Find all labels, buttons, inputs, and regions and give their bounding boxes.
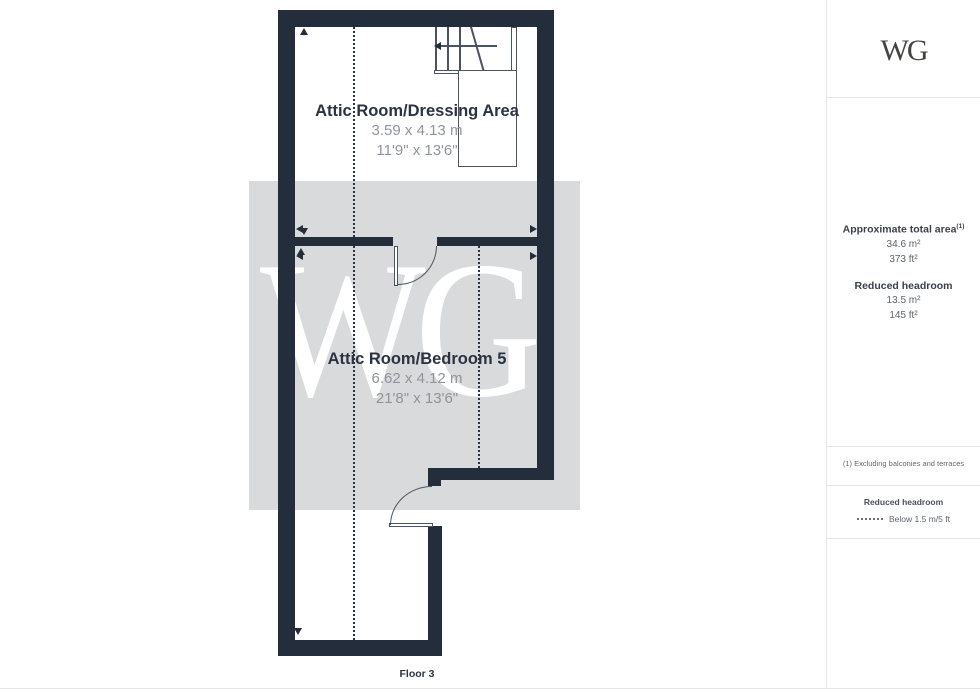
area-summary: Approximate total area(1) 34.6 m² 373 ft… <box>827 220 980 323</box>
reduced-headroom-line <box>353 246 355 640</box>
dimension-arrow-left-icon <box>296 225 303 233</box>
room-name: Attic Room/Dressing Area <box>267 101 567 121</box>
stair-tread <box>459 27 461 71</box>
approximate-total-area-text: Approximate total area <box>843 224 957 236</box>
legend-label: Below 1.5 m/5 ft <box>889 514 950 524</box>
page-bottom-divider <box>0 688 980 689</box>
sidebar-section-divider <box>827 485 980 486</box>
wall-bottom <box>278 640 442 656</box>
total-area-m2: 34.6 m² <box>827 237 980 252</box>
total-area-ft2: 373 ft² <box>827 252 980 267</box>
stair-direction-arrow-icon <box>434 42 441 50</box>
reduced-headroom-title: Reduced headroom <box>827 279 980 293</box>
dimension-arrow-left-icon <box>296 252 303 260</box>
wall-divider-right <box>437 237 537 246</box>
wall-divider-left <box>295 237 393 246</box>
wall-bedroom-bottom <box>428 468 554 480</box>
floor-label: Floor 3 <box>317 668 517 680</box>
stair-break-line <box>470 27 484 72</box>
legend-title: Reduced headroom <box>827 497 980 507</box>
footnote-text: (1) Excluding balconies and terraces <box>827 459 980 468</box>
stair-tread <box>447 27 449 71</box>
footnote-marker: (1) <box>956 223 964 230</box>
wall-right <box>537 10 554 480</box>
dotted-line-swatch-icon <box>857 518 883 520</box>
stair-partition-wall <box>511 27 517 74</box>
stair-landing-edge <box>434 70 461 74</box>
sidebar-divider <box>826 0 827 688</box>
room-size-metric: 6.62 x 4.12 m <box>267 369 567 389</box>
room-size-imperial: 11'9" x 13'6" <box>267 141 567 161</box>
legend-row: Below 1.5 m/5 ft <box>827 514 980 524</box>
wall-top <box>278 10 554 27</box>
reduced-headroom-ft2: 145 ft² <box>827 308 980 323</box>
sidebar: WG Approximate total area(1) 34.6 m² 373… <box>827 0 980 693</box>
dimension-arrow-right-icon <box>530 225 537 233</box>
room-size-imperial: 21'8" x 13'6" <box>267 389 567 409</box>
dimension-arrow-up-icon <box>300 28 308 35</box>
floorplan-page: WG Attic Room/Dressing Area 3.59 x 4.13 … <box>0 0 980 693</box>
stair-direction-line <box>441 45 497 47</box>
room-size-metric: 3.59 x 4.13 m <box>267 121 567 141</box>
sidebar-section-divider <box>827 538 980 539</box>
dimension-arrow-right-icon <box>530 252 537 260</box>
sidebar-section-divider <box>827 446 980 447</box>
wg-logo: WG <box>827 34 980 68</box>
room-name: Attic Room/Bedroom 5 <box>267 349 567 369</box>
room-label-dressing-area: Attic Room/Dressing Area 3.59 x 4.13 m 1… <box>267 101 567 160</box>
reduced-headroom-m2: 13.5 m² <box>827 293 980 308</box>
approximate-total-area-title: Approximate total area(1) <box>827 220 980 237</box>
wall-corridor-right <box>428 526 442 656</box>
dimension-arrow-down-icon <box>294 628 302 635</box>
sidebar-section-divider <box>827 97 980 98</box>
room-label-bedroom-5: Attic Room/Bedroom 5 6.62 x 4.12 m 21'8"… <box>267 349 567 408</box>
